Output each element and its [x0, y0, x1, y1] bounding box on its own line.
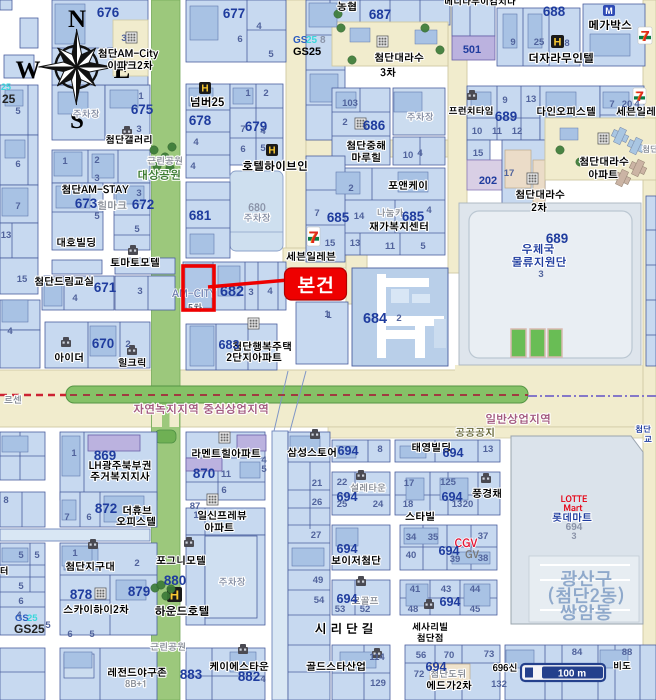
svg-text:5: 5 [94, 211, 100, 222]
svg-text:54: 54 [314, 595, 325, 606]
svg-text:6: 6 [86, 512, 91, 523]
svg-text:8: 8 [320, 35, 326, 46]
svg-text:501: 501 [463, 44, 481, 56]
svg-text:15: 15 [473, 148, 484, 159]
svg-text:684: 684 [363, 311, 387, 327]
svg-text:4: 4 [190, 161, 196, 172]
svg-text:N: N [68, 6, 86, 33]
svg-text:670: 670 [92, 336, 114, 351]
svg-text:683: 683 [218, 338, 239, 352]
svg-text:3: 3 [248, 287, 253, 298]
svg-text:34: 34 [406, 532, 417, 543]
svg-text:672: 672 [132, 197, 154, 212]
svg-text:883: 883 [180, 667, 202, 682]
svg-text:5: 5 [45, 620, 51, 631]
svg-text:70: 70 [444, 650, 455, 661]
svg-text:686: 686 [363, 118, 385, 133]
svg-text:11: 11 [221, 469, 232, 480]
svg-text:872: 872 [95, 501, 117, 516]
svg-text:4: 4 [260, 674, 266, 685]
svg-text:14: 14 [354, 211, 365, 222]
svg-text:1: 1 [326, 310, 332, 321]
svg-text:56: 56 [416, 650, 427, 661]
svg-text:2: 2 [125, 339, 130, 350]
svg-text:4: 4 [72, 293, 78, 304]
svg-text:3: 3 [94, 173, 99, 184]
svg-text:7: 7 [15, 201, 20, 212]
svg-text:7: 7 [64, 512, 69, 523]
svg-text:5: 5 [420, 241, 426, 252]
svg-text:49: 49 [313, 575, 324, 586]
svg-text:688: 688 [543, 4, 566, 19]
svg-text:4: 4 [260, 126, 266, 137]
svg-text:H: H [554, 37, 562, 49]
svg-text:25: 25 [534, 37, 545, 48]
svg-text:5: 5 [261, 464, 267, 475]
svg-text:3: 3 [538, 269, 543, 280]
svg-text:7: 7 [609, 99, 614, 110]
svg-text:870: 870 [193, 466, 215, 481]
svg-text:6: 6 [237, 34, 242, 45]
svg-text:1: 1 [62, 156, 68, 167]
svg-text:694: 694 [336, 542, 357, 556]
svg-text:677: 677 [223, 6, 245, 21]
svg-text:6: 6 [240, 144, 245, 155]
svg-text:25: 25 [1, 82, 11, 92]
svg-text:W: W [16, 57, 41, 84]
svg-text:20: 20 [622, 99, 633, 110]
svg-text:8: 8 [3, 495, 8, 506]
svg-text:25: 25 [2, 92, 16, 106]
svg-text:4: 4 [193, 137, 199, 148]
svg-text:GS25: GS25 [293, 46, 321, 58]
svg-text:11: 11 [492, 126, 503, 137]
svg-text:882: 882 [238, 669, 260, 684]
svg-text:103: 103 [342, 98, 358, 109]
svg-text:5: 5 [18, 550, 24, 561]
svg-text:8: 8 [377, 444, 382, 455]
svg-text:4: 4 [256, 21, 262, 32]
svg-text:694: 694 [425, 660, 446, 674]
svg-text:3: 3 [136, 124, 141, 135]
svg-text:2: 2 [134, 558, 139, 569]
svg-text:1: 1 [193, 510, 199, 521]
svg-text:7: 7 [240, 124, 245, 135]
svg-text:20: 20 [463, 499, 474, 510]
svg-text:125: 125 [440, 477, 457, 488]
svg-text:H: H [201, 84, 208, 95]
svg-text:15: 15 [17, 274, 28, 285]
svg-text:41: 41 [410, 584, 421, 595]
svg-text:53: 53 [335, 604, 346, 615]
svg-text:202: 202 [479, 175, 497, 187]
svg-text:52: 52 [360, 604, 371, 615]
svg-text:4: 4 [7, 326, 13, 337]
svg-text:GS25: GS25 [14, 622, 45, 636]
svg-text:7: 7 [641, 28, 649, 45]
svg-text:1: 1 [245, 88, 251, 99]
svg-text:3: 3 [136, 188, 141, 199]
svg-text:9: 9 [502, 95, 507, 106]
svg-text:24: 24 [373, 499, 384, 510]
svg-text:12: 12 [512, 126, 523, 137]
svg-text:17: 17 [504, 168, 515, 179]
svg-text:45: 45 [470, 604, 481, 615]
svg-text:132: 132 [491, 679, 507, 690]
svg-text:6: 6 [67, 629, 72, 640]
svg-text:40: 40 [406, 550, 417, 561]
svg-text:25: 25 [306, 35, 318, 46]
svg-text:5: 5 [260, 143, 266, 154]
svg-text:6: 6 [18, 596, 23, 607]
svg-text:88: 88 [622, 647, 633, 658]
svg-text:44: 44 [470, 584, 481, 595]
svg-text:689: 689 [546, 231, 568, 246]
svg-text:73: 73 [484, 649, 495, 660]
svg-text:6: 6 [15, 159, 20, 170]
svg-text:10: 10 [403, 150, 414, 161]
svg-text:7: 7 [309, 228, 318, 247]
svg-text:39: 39 [450, 554, 461, 565]
svg-text:4: 4 [426, 205, 432, 216]
svg-text:6: 6 [221, 485, 226, 496]
svg-text:22: 22 [337, 477, 348, 488]
svg-text:114: 114 [369, 652, 385, 663]
svg-text:5: 5 [89, 629, 95, 640]
svg-text:5: 5 [34, 550, 40, 561]
svg-text:4: 4 [417, 148, 423, 159]
svg-text:3: 3 [571, 531, 576, 541]
svg-text:878: 878 [70, 587, 93, 602]
svg-text:13: 13 [350, 238, 361, 249]
svg-text:13: 13 [526, 94, 537, 105]
svg-text:1: 1 [138, 91, 144, 102]
svg-text:10: 10 [472, 126, 483, 137]
svg-text:13: 13 [1, 230, 12, 241]
svg-text:4: 4 [634, 99, 640, 110]
svg-text:676: 676 [97, 5, 119, 20]
svg-text:35: 35 [428, 532, 439, 543]
svg-text:2: 2 [396, 313, 401, 324]
svg-text:37: 37 [478, 531, 489, 542]
svg-text:8: 8 [564, 38, 569, 49]
svg-text:84: 84 [572, 647, 583, 658]
svg-text:72: 72 [414, 669, 425, 680]
svg-text:43: 43 [441, 584, 452, 595]
svg-text:4: 4 [267, 286, 273, 297]
svg-text:671: 671 [94, 280, 117, 295]
svg-text:7: 7 [314, 208, 319, 219]
svg-text:694: 694 [439, 595, 460, 609]
svg-text:17: 17 [404, 478, 415, 489]
svg-text:678: 678 [189, 113, 212, 128]
svg-text:1: 1 [72, 548, 78, 559]
svg-text:18: 18 [403, 499, 414, 510]
svg-text:M: M [605, 6, 613, 16]
svg-text:11: 11 [385, 241, 396, 252]
svg-text:880: 880 [164, 573, 186, 588]
svg-text:694: 694 [337, 444, 358, 458]
svg-text:5: 5 [18, 581, 24, 592]
svg-text:694: 694 [442, 446, 463, 460]
svg-text:27: 27 [311, 530, 322, 541]
svg-text:675: 675 [131, 102, 154, 117]
svg-text:48: 48 [408, 604, 419, 615]
svg-text:2: 2 [348, 183, 353, 194]
svg-text:3: 3 [121, 33, 126, 44]
svg-text:25: 25 [337, 499, 348, 510]
svg-text:1: 1 [71, 448, 77, 459]
svg-text:869: 869 [94, 448, 116, 463]
svg-text:2: 2 [342, 117, 347, 128]
svg-text:5: 5 [134, 224, 140, 235]
svg-text:129: 129 [370, 678, 386, 689]
svg-text:879: 879 [128, 584, 150, 599]
svg-text:H: H [268, 146, 275, 157]
svg-text:685: 685 [327, 210, 350, 225]
svg-text:685: 685 [402, 209, 425, 224]
svg-text:681: 681 [189, 208, 212, 223]
svg-text:100 m: 100 m [558, 669, 586, 680]
svg-text:9: 9 [510, 37, 515, 48]
svg-text:21: 21 [312, 478, 323, 489]
svg-text:5: 5 [268, 49, 274, 60]
svg-text:26: 26 [312, 497, 323, 508]
svg-text:13: 13 [483, 444, 494, 455]
svg-text:689: 689 [495, 109, 517, 124]
svg-text:2: 2 [263, 88, 268, 99]
svg-text:13: 13 [452, 499, 463, 510]
svg-text:3: 3 [137, 286, 142, 297]
svg-text:673: 673 [75, 196, 97, 211]
svg-text:15: 15 [325, 238, 336, 249]
svg-text:2: 2 [94, 155, 99, 166]
svg-text:38: 38 [478, 553, 489, 564]
svg-text:5: 5 [15, 106, 21, 117]
svg-text:687: 687 [369, 7, 391, 22]
